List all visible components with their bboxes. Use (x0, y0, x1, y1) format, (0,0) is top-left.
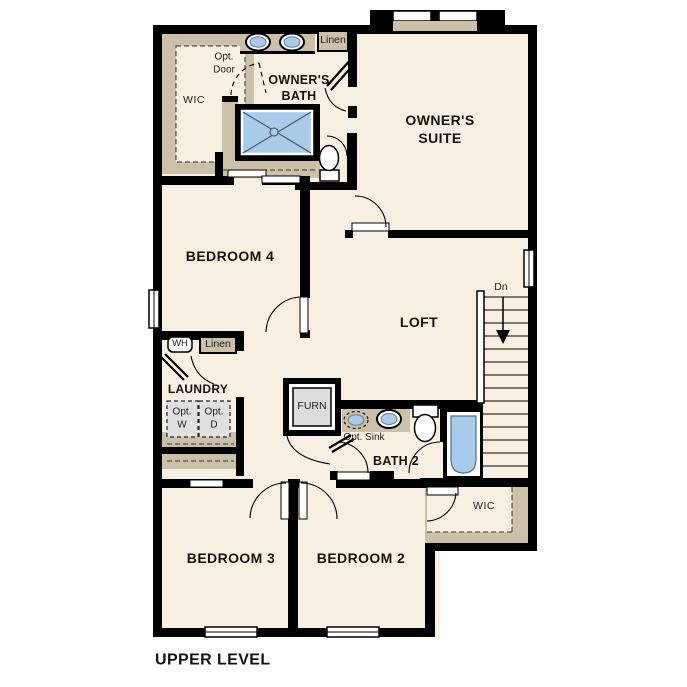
linen-hall-label: Linen (205, 338, 231, 352)
linen-bath-label: Linen (320, 34, 346, 48)
opt-door-label: Opt. Door (213, 52, 235, 77)
sink-icon (246, 34, 270, 51)
shower-icon (242, 111, 312, 154)
opt-sink-label: Opt. Sink (343, 432, 384, 445)
bedroom2-wic-label: WIC (473, 500, 495, 514)
opt-dryer-label: Opt. D (205, 407, 224, 432)
sink-icon (280, 34, 304, 51)
bay-window-left (393, 11, 431, 21)
bedroom3-closet-door (190, 480, 223, 487)
floor-plan-drawing (0, 0, 687, 687)
toilet-icon (413, 405, 438, 442)
water-heater-label: WH (172, 338, 188, 350)
bath2-label: BATH 2 (373, 453, 419, 469)
furnace-label: FURN (297, 400, 326, 414)
owners-bath-label: OWNER'S BATH (268, 72, 329, 105)
stairs-down-label: Dn (494, 281, 507, 295)
bedroom4-label: BEDROOM 4 (186, 247, 274, 265)
loft-label: LOFT (400, 313, 438, 331)
bedroom3-label: BEDROOM 3 (187, 549, 275, 567)
level-title: UPPER LEVEL (155, 651, 271, 672)
sink-icon (377, 410, 401, 428)
owners-wic-label: WIC (183, 94, 205, 108)
bedroom2-label: BEDROOM 2 (317, 549, 405, 567)
floor-plan: Opt. Door WIC OWNER'S BATH Linen OWNER'S… (0, 0, 687, 687)
toilet-icon (320, 146, 340, 182)
owners-suite-label: OWNER'S SUITE (405, 111, 474, 147)
opt-washer-label: Opt. W (173, 407, 192, 432)
bay-window-right (439, 11, 477, 21)
stair-rail (477, 291, 484, 403)
laundry-label: LAUNDRY (168, 382, 228, 398)
bay-window-sill (393, 21, 477, 31)
bathtub-icon (447, 412, 480, 476)
